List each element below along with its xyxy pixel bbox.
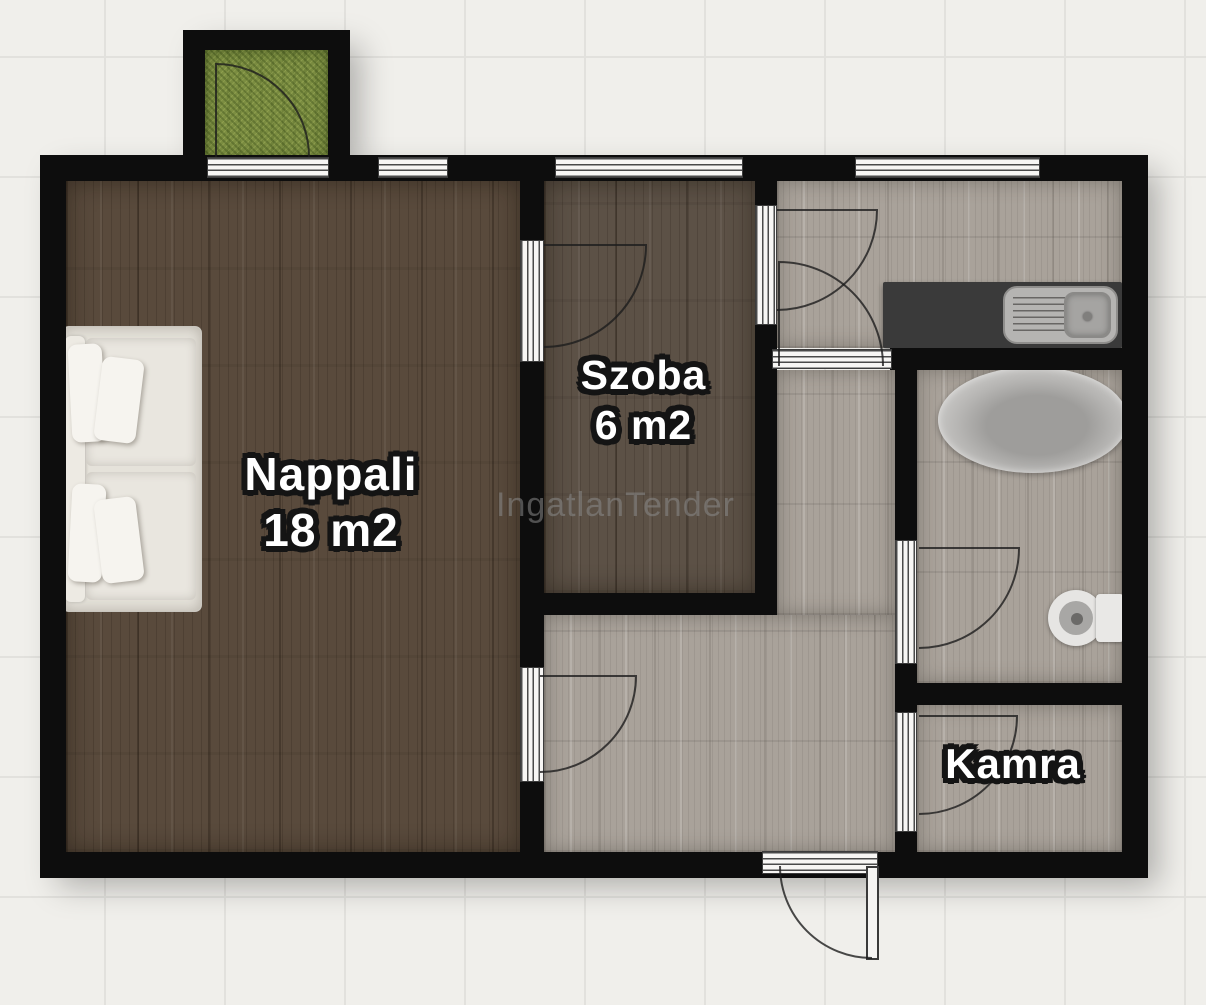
kitchen-door-frame [755,205,777,325]
balcony-wall-right [328,30,350,161]
wall-bottom [40,852,1148,878]
corridor-floor [777,370,895,615]
room-area: 6 m2 [525,400,762,450]
watermark: IngatlanTender [496,486,735,525]
floor-plan: Nappali 18 m2 Szoba 6 m2 Kamra IngatlanT… [0,0,1206,1005]
balcony-door-window [207,157,329,178]
sink-tap [1083,312,1092,321]
kitchen-window [855,157,1040,178]
kitchen-counter [883,282,1122,348]
room-label-szoba: Szoba 6 m2 [525,350,762,450]
kitchen-sink [1003,286,1118,344]
room-name: Kamra [893,738,1133,789]
balcony-floor [205,50,328,159]
toilet-tank [1096,594,1124,642]
room-name: Nappali [180,446,482,502]
entrance-door-frame [762,851,878,874]
wall-kitchen-bathroom [890,348,1122,370]
hall-floor [544,615,895,852]
corridor-door-frame [772,349,892,369]
balcony-wall-top [183,30,350,50]
room-area: 18 m2 [180,502,482,558]
entrance-door-leaf [866,866,879,960]
bedroom-window [555,157,743,178]
room-name: Szoba [525,350,762,400]
hall-door-frame [520,667,544,782]
living-room-window [378,157,448,178]
room-label-kamra: Kamra [893,738,1133,789]
wall-bedroom-bottom [520,593,777,615]
toilet-drain [1071,613,1083,625]
sink-drainboard [1013,297,1065,333]
bathroom-door-frame [895,540,917,664]
entrance-door-arc [780,866,872,958]
wall-left [40,155,66,878]
bathtub [938,367,1128,473]
wall-bathroom-pantry [895,683,1122,705]
bedroom-door-frame [520,240,544,362]
room-label-nappali: Nappali 18 m2 [180,446,482,558]
